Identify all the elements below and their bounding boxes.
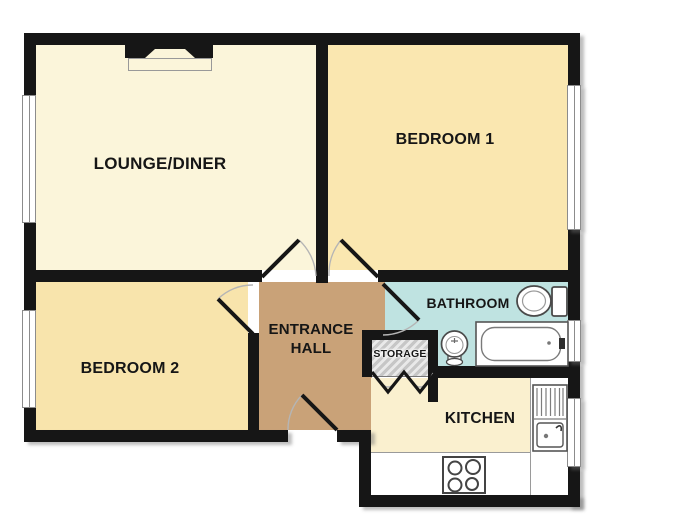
wall-kitchen-bottom [359, 495, 580, 507]
wall-outer-right [568, 33, 580, 85]
wall-outer-top [24, 33, 580, 45]
kitchen-label: KITCHEN [418, 410, 542, 428]
kitchen-counter [530, 378, 569, 495]
fireplace-hearth [128, 58, 212, 71]
kitchen-window [567, 398, 581, 467]
wall-storage-top [362, 330, 438, 340]
lounge-window [22, 95, 36, 223]
bedroom2-floor [35, 282, 248, 430]
wall-bathroom-kitchen [428, 366, 568, 378]
window-pane [574, 86, 575, 229]
bedroom1-floor [328, 45, 568, 270]
bathroom-floor [438, 330, 568, 366]
entrance-hall-label: ENTRANCE HALL [249, 320, 373, 358]
entrance-hall-label-line2: HALL [249, 339, 373, 358]
bathroom-window [567, 320, 581, 362]
window-pane [574, 399, 575, 466]
wall-outer-right [568, 230, 580, 320]
entrance-hall-label-line1: ENTRANCE [249, 320, 373, 339]
bedroom2-window [22, 310, 36, 408]
window-pane [29, 96, 30, 222]
window-pane [29, 311, 30, 407]
wall-outer-left [24, 33, 36, 95]
wall-outer-bottom [24, 430, 288, 442]
bedroom2-label: BEDROOM 2 [30, 360, 230, 378]
bedroom1-label: BEDROOM 1 [345, 131, 545, 149]
wall-outer-right [568, 362, 580, 398]
wall-outer-right [568, 467, 580, 507]
wall-outer-left [24, 223, 36, 310]
window-pane [574, 321, 575, 361]
storage-label: STORAGE [368, 348, 432, 360]
wall-lounge-bedroom1-divider [316, 45, 328, 283]
wall-mid-horizontal [24, 270, 262, 282]
bedroom1-window [567, 85, 581, 230]
wall-mid-horizontal [378, 270, 568, 282]
lounge-label: LOUNGE/DINER [60, 154, 260, 174]
bathroom-label: BATHROOM [406, 295, 530, 311]
floorplan: LOUNGE/DINER BEDROOM 1 BEDROOM 2 ENTRANC… [0, 0, 700, 524]
